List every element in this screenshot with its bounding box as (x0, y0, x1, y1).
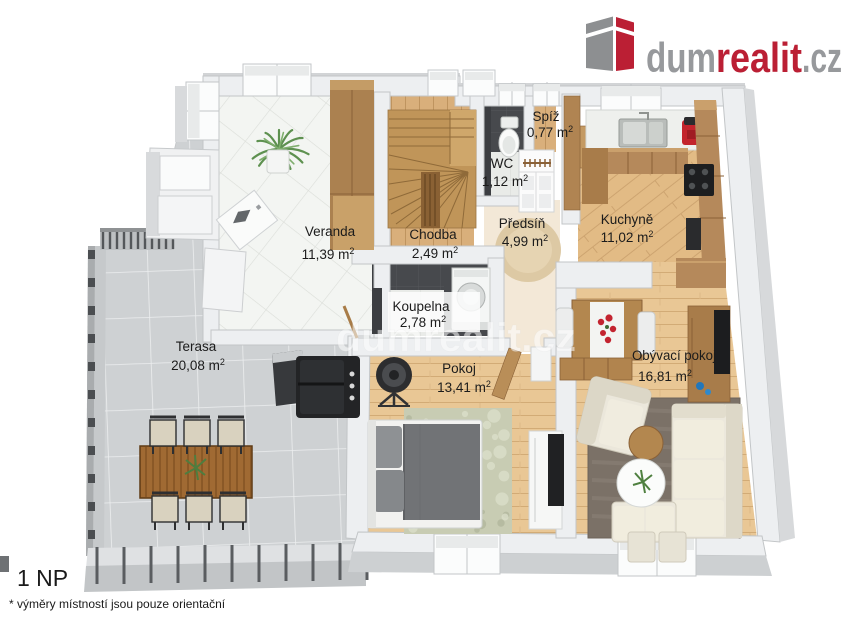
svg-text:0,77 m2: 0,77 m2 (527, 124, 573, 140)
svg-text:Obývací pokoj: Obývací pokoj (632, 348, 716, 363)
svg-text:20,08 m2: 20,08 m2 (171, 357, 225, 373)
svg-text:13,41 m2: 13,41 m2 (437, 379, 491, 395)
svg-text:1,12 m2: 1,12 m2 (482, 173, 528, 189)
svg-text:Veranda: Veranda (305, 224, 356, 239)
svg-text:dumrealit.cz: dumrealit.cz (336, 316, 576, 360)
svg-text:.cz: .cz (802, 34, 842, 81)
svg-text:realit: realit (716, 34, 802, 81)
svg-text:11,02 m2: 11,02 m2 (601, 229, 654, 245)
svg-text:WC: WC (491, 156, 514, 171)
svg-text:11,39 m2: 11,39 m2 (302, 246, 355, 262)
svg-text:1 NP: 1 NP (17, 565, 68, 591)
svg-text:Spíž: Spíž (532, 109, 559, 124)
svg-text:dum: dum (646, 34, 716, 81)
svg-text:Terasa: Terasa (176, 339, 217, 354)
svg-text:Předsíň: Předsíň (499, 216, 546, 231)
svg-text:Koupelna: Koupelna (392, 299, 450, 314)
svg-text:Kuchyně: Kuchyně (601, 212, 654, 227)
svg-text:4,99 m2: 4,99 m2 (502, 233, 548, 249)
svg-text:* výměry místností jsou pouze: * výměry místností jsou pouze orientační (9, 597, 226, 611)
svg-text:Pokoj: Pokoj (442, 361, 476, 376)
svg-text:Chodba: Chodba (409, 227, 457, 242)
svg-text:16,81 m2: 16,81 m2 (638, 368, 692, 384)
svg-text:2,49 m2: 2,49 m2 (412, 245, 458, 261)
